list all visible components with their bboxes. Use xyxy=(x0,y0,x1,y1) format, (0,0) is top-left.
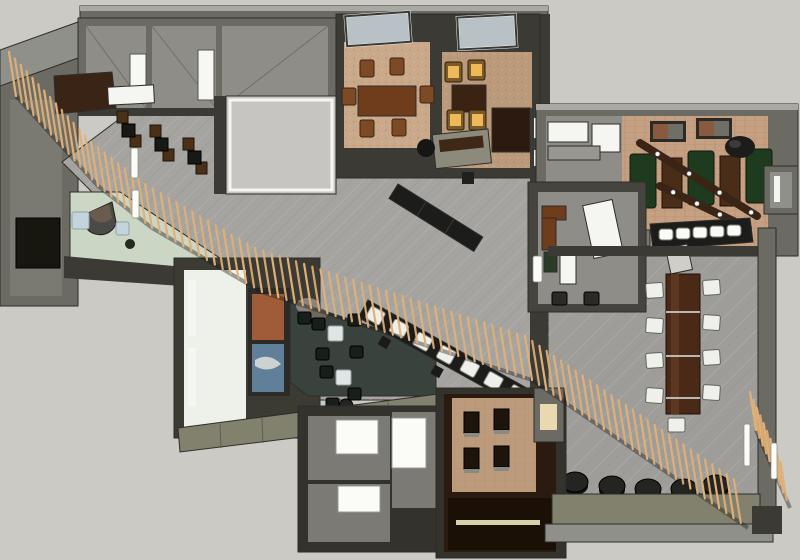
wood-chair xyxy=(360,60,374,77)
dining-chair xyxy=(645,387,663,403)
wood-chair xyxy=(392,119,406,136)
entry-canopy xyxy=(54,72,116,114)
beam-light xyxy=(717,212,722,217)
south-bench xyxy=(552,494,760,524)
round-table xyxy=(417,139,435,157)
room-door-panel xyxy=(198,50,214,100)
wood-chair xyxy=(420,86,434,103)
plant xyxy=(125,239,135,249)
side-stool xyxy=(552,292,567,305)
light-bar xyxy=(132,190,139,218)
dining-chair xyxy=(702,314,720,330)
bar-stool xyxy=(710,226,724,237)
restroom-light-panel xyxy=(338,486,380,512)
vestibule-mat xyxy=(116,222,129,235)
bar-stool xyxy=(676,228,690,239)
light-bar xyxy=(771,443,777,479)
beam-light xyxy=(671,190,676,195)
beam-light xyxy=(749,210,754,215)
wood-chair xyxy=(342,88,356,105)
lounge-chair xyxy=(348,388,361,400)
floor-plan-canvas xyxy=(0,0,800,560)
cafe-chair xyxy=(183,138,194,150)
light-bar xyxy=(744,424,750,466)
lounge-chair xyxy=(350,346,363,358)
amber-chair xyxy=(469,110,486,130)
side-stool xyxy=(584,292,599,305)
bar-stool xyxy=(659,229,673,240)
dining-chair xyxy=(703,349,721,365)
entry-door-opening xyxy=(16,218,60,268)
framed-picture xyxy=(696,118,732,139)
communal-table-grain xyxy=(671,274,679,414)
column-light-panel xyxy=(540,404,557,430)
restroom-light-panel xyxy=(392,418,426,468)
office-bench xyxy=(560,254,576,284)
bar-stool xyxy=(693,227,707,238)
lounge-chair xyxy=(298,312,311,324)
cafe-table xyxy=(188,151,201,164)
drum-pendant xyxy=(725,136,755,158)
north-wall-top xyxy=(80,6,548,11)
bar-stool xyxy=(727,225,741,236)
lounge-chair xyxy=(316,348,329,360)
platform-table-set xyxy=(464,448,479,473)
beam-light xyxy=(695,201,700,206)
dining-chair xyxy=(703,279,721,295)
light-bar xyxy=(533,256,542,282)
southeast-corner xyxy=(752,506,782,534)
dining-chair xyxy=(646,352,664,368)
lounge-table xyxy=(328,326,343,341)
lounge-chair xyxy=(312,318,325,330)
dining-table-wood xyxy=(358,86,416,116)
cafe-chair xyxy=(117,111,128,123)
cafe-chair xyxy=(150,125,161,137)
amber-chair xyxy=(445,62,462,82)
beam-light xyxy=(655,152,660,157)
cafe-table xyxy=(155,138,168,151)
small-table xyxy=(462,172,474,184)
beam-light xyxy=(717,190,722,195)
framed-picture xyxy=(650,121,686,142)
wood-chair xyxy=(390,58,404,75)
dining-chair xyxy=(702,384,720,400)
wood-chair xyxy=(360,120,374,137)
restroom-light-panel xyxy=(336,420,378,454)
light-bar xyxy=(131,148,138,178)
dining-sideboard xyxy=(492,108,530,152)
cafe-table xyxy=(122,124,135,137)
south-wall xyxy=(545,524,773,542)
skylight-right xyxy=(457,15,517,50)
vestibule-mat xyxy=(72,212,89,229)
backbar-counter xyxy=(548,122,588,142)
kitchen-pass-counter xyxy=(108,85,155,105)
platform-table-set xyxy=(494,446,509,471)
skylight-left xyxy=(345,12,411,46)
lounge-table xyxy=(336,370,351,385)
amber-chair xyxy=(468,60,485,80)
dining-chair xyxy=(646,282,664,298)
dining-table-dark xyxy=(452,85,486,112)
floor-plan-render xyxy=(0,0,800,560)
amber-chair xyxy=(447,110,464,130)
dining-chair xyxy=(645,317,663,333)
artwork-top xyxy=(252,294,284,340)
pouf xyxy=(599,476,625,496)
lounge-chair xyxy=(320,366,333,378)
dining-chair xyxy=(668,418,685,432)
beam-light xyxy=(687,171,692,176)
platform-table-set xyxy=(494,409,509,434)
platform-table-set xyxy=(464,412,479,437)
drum-pendant-highlight xyxy=(729,140,741,148)
stair-light-strip xyxy=(456,520,540,525)
